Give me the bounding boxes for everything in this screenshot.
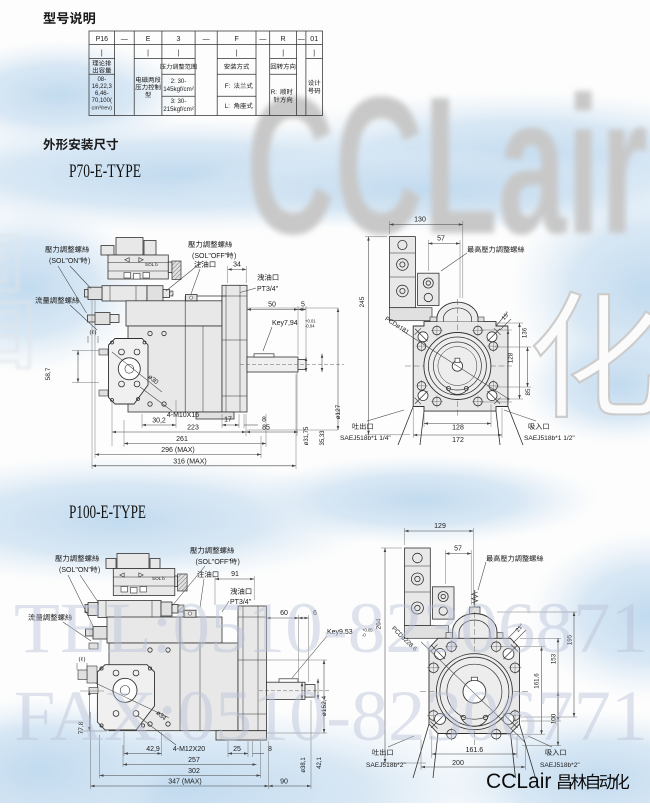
svg-text:(SOL"ON": (SOL"ON" bbox=[49, 258, 81, 265]
svg-text:—: — bbox=[203, 36, 210, 43]
svg-text:01: 01 bbox=[310, 36, 318, 43]
svg-text:172: 172 bbox=[452, 437, 464, 444]
svg-text:ø38,1: ø38,1 bbox=[301, 757, 307, 773]
svg-text:8: 8 bbox=[262, 417, 266, 424]
svg-text:(ℓ): (ℓ) bbox=[90, 329, 97, 336]
svg-text:145kgf/cm²: 145kgf/cm² bbox=[163, 86, 194, 93]
svg-text:3: 3 bbox=[177, 36, 181, 43]
svg-text:): ) bbox=[88, 258, 90, 265]
svg-text:91: 91 bbox=[231, 571, 239, 578]
svg-text:): ) bbox=[234, 253, 236, 260]
svg-text:SAEJ518b*2": SAEJ518b*2" bbox=[366, 762, 406, 769]
svg-text:34: 34 bbox=[233, 262, 241, 269]
svg-text:(SOL"OFF": (SOL"OFF" bbox=[196, 559, 232, 566]
svg-text:136: 136 bbox=[522, 327, 529, 338]
svg-text:257: 257 bbox=[188, 757, 200, 764]
svg-text:ø127: ø127 bbox=[335, 404, 342, 419]
svg-text:128: 128 bbox=[452, 425, 464, 432]
svg-text:): ) bbox=[238, 559, 240, 566]
svg-text:130: 130 bbox=[414, 217, 426, 224]
svg-text:6,46-: 6,46- bbox=[95, 91, 109, 97]
svg-text:70,100(: 70,100( bbox=[92, 98, 112, 104]
svg-text:|: | bbox=[147, 50, 149, 57]
svg-text:|: | bbox=[313, 50, 315, 57]
svg-text:200: 200 bbox=[452, 760, 464, 767]
svg-text:|: | bbox=[178, 50, 180, 57]
svg-text:P100-E-TYPE: P100-E-TYPE bbox=[69, 502, 146, 523]
svg-text:3: 30-: 3: 30- bbox=[171, 98, 187, 105]
svg-text:TEL:0510-82306871: TEL:0510-82306871 bbox=[14, 588, 648, 668]
svg-text:35,33: 35,33 bbox=[320, 430, 326, 446]
svg-text:57: 57 bbox=[437, 236, 445, 243]
svg-text:ø31,75: ø31,75 bbox=[304, 426, 310, 445]
svg-text:FAX:0510-82306771: FAX:0510-82306771 bbox=[14, 676, 648, 756]
svg-text:17: 17 bbox=[224, 417, 232, 424]
svg-text:85: 85 bbox=[525, 388, 532, 395]
svg-text:SOL b: SOL b bbox=[152, 576, 165, 581]
svg-text:58,7: 58,7 bbox=[45, 367, 52, 380]
svg-text:SOL b: SOL b bbox=[145, 262, 158, 267]
svg-text:SAEJ518b*2": SAEJ518b*2" bbox=[540, 762, 580, 769]
svg-text:E: E bbox=[146, 36, 151, 43]
svg-text:P16: P16 bbox=[96, 36, 109, 43]
svg-text:—: — bbox=[298, 36, 305, 43]
svg-text:16,22,3: 16,22,3 bbox=[92, 84, 113, 90]
svg-text:|: | bbox=[101, 50, 103, 57]
svg-text:CCLair: CCLair bbox=[486, 770, 551, 793]
svg-text:5: 5 bbox=[301, 302, 305, 309]
svg-text:128: 128 bbox=[508, 352, 515, 363]
svg-text:50: 50 bbox=[268, 302, 276, 309]
svg-text:): ) bbox=[98, 567, 100, 574]
svg-text:08-: 08- bbox=[97, 77, 106, 83]
svg-text:P70-E-TYPE: P70-E-TYPE bbox=[69, 161, 141, 182]
svg-text:129: 129 bbox=[434, 523, 446, 530]
svg-text:347 (MAX): 347 (MAX) bbox=[168, 779, 201, 786]
svg-text:(SOL"ON": (SOL"ON" bbox=[59, 567, 91, 574]
svg-text:30,2: 30,2 bbox=[152, 418, 166, 425]
svg-text:42,1: 42,1 bbox=[317, 757, 323, 769]
svg-text:296 (MAX): 296 (MAX) bbox=[161, 447, 194, 454]
svg-text:F:: F: bbox=[225, 83, 231, 90]
svg-text:2: 30-: 2: 30- bbox=[171, 78, 187, 85]
svg-text:302: 302 bbox=[188, 768, 200, 775]
svg-text:|: | bbox=[236, 50, 238, 57]
svg-text:CCLair: CCLair bbox=[246, 56, 648, 275]
svg-text:—: — bbox=[259, 36, 266, 43]
svg-text:57: 57 bbox=[454, 546, 462, 553]
svg-text:245: 245 bbox=[359, 296, 366, 307]
svg-text:215kgf/cm²: 215kgf/cm² bbox=[163, 106, 194, 113]
svg-text:|: | bbox=[282, 50, 284, 57]
svg-text:Key7,94: Key7,94 bbox=[272, 320, 298, 327]
svg-text:-0.04: -0.04 bbox=[305, 324, 315, 329]
svg-text:261: 261 bbox=[176, 436, 188, 443]
svg-text:cm³/rev): cm³/rev) bbox=[92, 106, 113, 112]
svg-text:—: — bbox=[121, 36, 128, 43]
svg-text:90: 90 bbox=[280, 779, 288, 786]
svg-text:(SOL"OFF": (SOL"OFF" bbox=[192, 253, 228, 260]
svg-text:L:: L: bbox=[225, 103, 231, 110]
svg-text:316 (MAX): 316 (MAX) bbox=[173, 459, 206, 466]
svg-text:PT3/4": PT3/4" bbox=[257, 286, 279, 293]
svg-text:223: 223 bbox=[187, 425, 199, 432]
svg-text:4-M10X16: 4-M10X16 bbox=[167, 412, 199, 419]
svg-text:R:: R: bbox=[271, 89, 278, 96]
svg-text:R: R bbox=[281, 36, 286, 43]
svg-text:SAEJ518b*1 1/4": SAEJ518b*1 1/4" bbox=[340, 435, 391, 442]
svg-text:F: F bbox=[234, 36, 238, 43]
svg-text:SAEJ518b*1 1/2": SAEJ518b*1 1/2" bbox=[524, 435, 575, 442]
